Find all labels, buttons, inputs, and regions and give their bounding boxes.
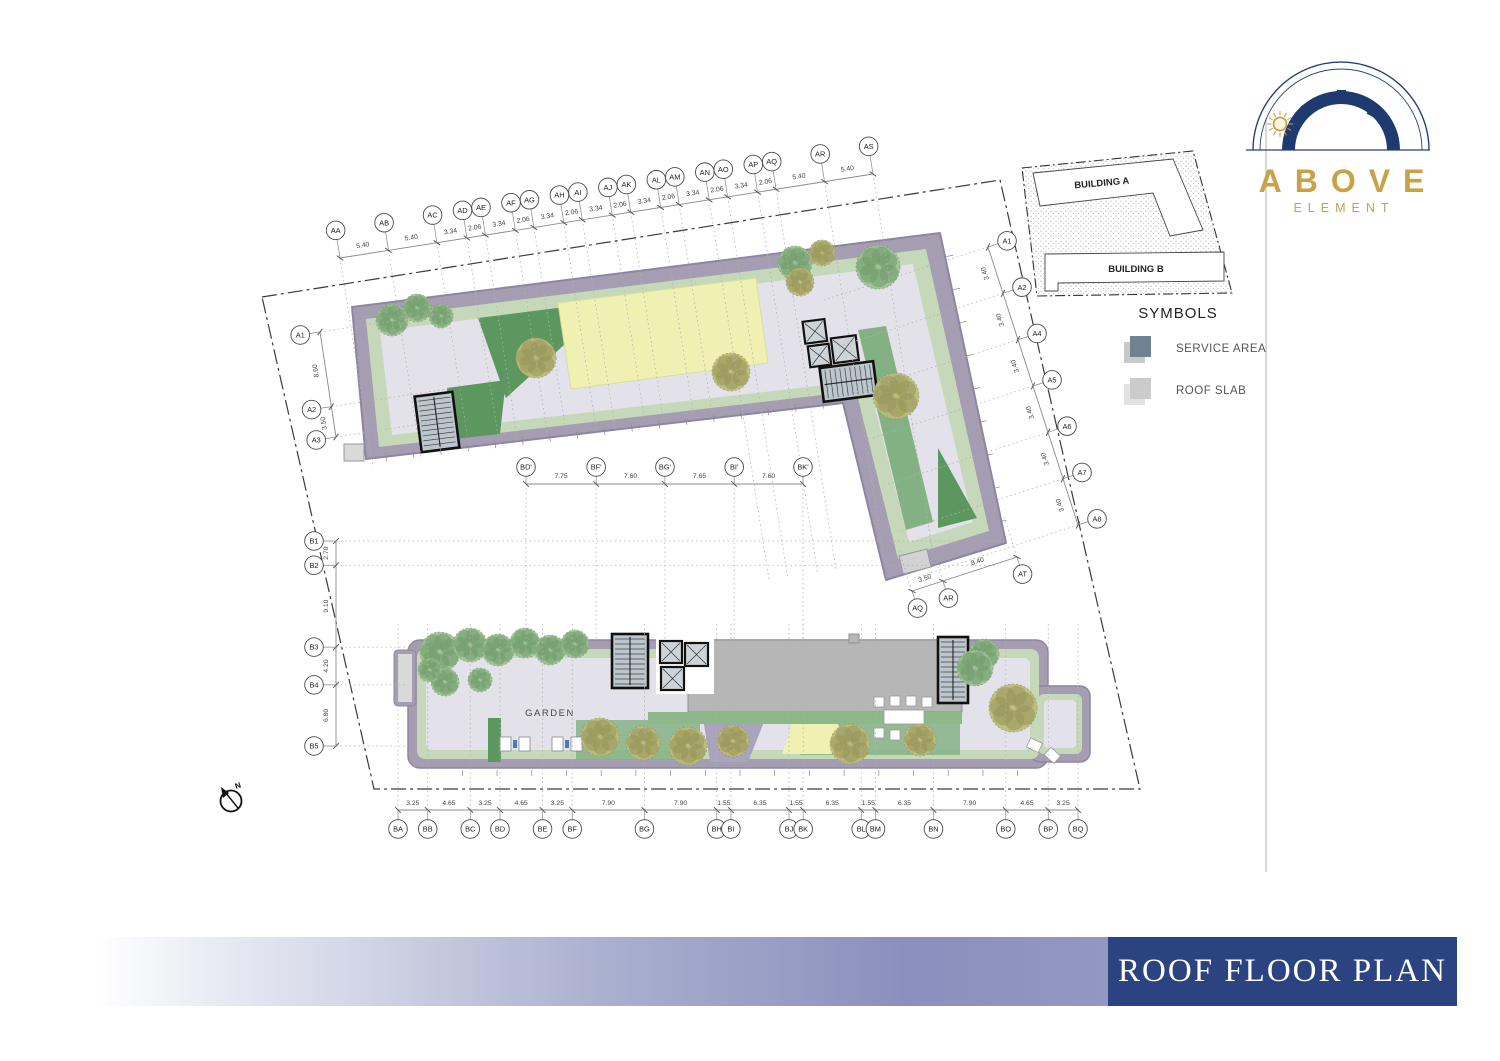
tree	[989, 684, 1037, 732]
grid-label: AS	[864, 142, 874, 151]
grid-label: A8	[1093, 514, 1102, 523]
grid-dim: 3.34	[492, 220, 506, 229]
grid-label: BG	[639, 825, 650, 834]
tree	[429, 304, 453, 328]
logo-subtitle: ELEMENT	[1293, 201, 1394, 215]
grid-label: AO	[718, 165, 729, 174]
service-slab	[688, 640, 962, 712]
grid-dim: 7.90	[963, 800, 976, 807]
grid-label: BI	[727, 825, 734, 834]
tree	[581, 718, 619, 756]
grid-label: AE	[476, 203, 486, 212]
grid-dim: 4.65	[515, 800, 528, 807]
grid-label: BF	[568, 825, 578, 834]
grid-label: AK	[621, 180, 631, 189]
grid-dim: 2.06	[516, 216, 530, 225]
logo-rock-4	[1390, 138, 1399, 150]
grid-label: AA	[331, 226, 341, 235]
tree	[516, 338, 556, 378]
tree	[717, 725, 749, 757]
grid-label: BN	[928, 825, 938, 834]
grid-label: A3	[312, 436, 321, 445]
service-area-label: SERVICE AREA	[1176, 343, 1266, 355]
grid-dim: 4.20	[323, 659, 330, 672]
tree	[418, 658, 442, 682]
grid-label: AN	[700, 168, 710, 177]
grid-dim: 9.10	[323, 599, 330, 612]
grid-label: BD	[495, 825, 505, 834]
grid-label: BF'	[591, 463, 602, 472]
grid-dim: 3.34	[589, 205, 603, 214]
grid-dim: 7.75	[554, 473, 567, 480]
grid-dim: 2.06	[662, 193, 676, 202]
garden-label: GARDEN	[525, 708, 575, 719]
grid-label: AD	[457, 206, 467, 215]
key-plan: BUILDING A BUILDING B	[1022, 151, 1232, 296]
key-plan-building-b-label: BUILDING B	[1108, 264, 1164, 275]
grid-dim: 7.65	[693, 473, 706, 480]
grid-label: B2	[309, 561, 318, 570]
grid-label: BB	[423, 825, 433, 834]
brand-logo: ABOVE ELEMENT	[1246, 62, 1437, 872]
roof-slab-swatch	[1130, 378, 1151, 399]
grid-label: AR	[815, 150, 825, 159]
grid-label: A2	[307, 405, 316, 414]
tree	[830, 724, 870, 764]
grid-label: BJ	[785, 825, 794, 834]
service-slab-notch	[849, 634, 859, 643]
grid-dim: 3.25	[478, 800, 491, 807]
stair-core-b-left	[612, 634, 648, 688]
grid-dim: 3.50	[320, 416, 329, 430]
grid-label: AJ	[604, 183, 613, 192]
grid-dim: 7.90	[602, 800, 615, 807]
tree	[403, 294, 431, 322]
roof-plan-drawing: GARDEN AAABACADAEAFAGAHAIAJAKALAMANAOAPA…	[0, 0, 1500, 1061]
grid-dim: 7.60	[624, 473, 637, 480]
grid-label: AF	[506, 198, 516, 207]
grid-label: A4	[1033, 329, 1042, 338]
tree	[482, 634, 514, 666]
sheet-canvas: GARDEN AAABACADAEAFAGAHAIAJAKALAMANAOAPA…	[0, 0, 1500, 1061]
tree	[669, 727, 707, 765]
grid-dim: 6.35	[753, 800, 766, 807]
building-b-right-paving	[1044, 700, 1076, 748]
grid-label: BA	[393, 825, 403, 834]
grid-dim: 3.25	[406, 800, 419, 807]
tree	[904, 724, 936, 756]
grid-dim: 3.40	[995, 312, 1006, 327]
grid-label: BI'	[730, 463, 739, 472]
grid-label: AH	[554, 191, 564, 200]
sheet-title: ROOF FLOOR PLAN	[1118, 953, 1447, 990]
tree	[873, 373, 919, 419]
grid-dim: 3.25	[1057, 800, 1070, 807]
grid-dim: 4.65	[1020, 800, 1033, 807]
grid-dim: 3.34	[734, 182, 748, 191]
grid-label: AG	[524, 195, 535, 204]
grid-label: BL	[857, 825, 866, 834]
grid-label: BM	[870, 825, 881, 834]
tree	[712, 353, 750, 391]
grid-dim: 7.60	[762, 473, 775, 480]
grid-dim: 2.06	[613, 201, 627, 210]
building-b-dark-green-stripe	[488, 718, 501, 762]
grid-label: BK'	[797, 463, 809, 472]
grid-label: BC	[465, 825, 476, 834]
grid-label: AP	[748, 160, 758, 169]
north-label: N	[234, 780, 242, 790]
grid-dim: 2.06	[710, 185, 724, 194]
footer-gradient-bar	[95, 937, 1108, 1006]
logo-wordmark: ABOVE	[1259, 163, 1438, 199]
grid-dim: 3.40	[1040, 451, 1051, 466]
sheet-title-bar: ROOF FLOOR PLAN	[1108, 937, 1457, 1006]
tree	[809, 240, 835, 266]
grid-dim: 7.90	[674, 800, 687, 807]
grid-dim: 5.40	[840, 165, 854, 174]
grid-dim: 3.34	[540, 212, 554, 221]
building-a-left-notch	[344, 444, 364, 461]
grid-label: AT	[1018, 570, 1027, 579]
grid-label: AQ	[766, 157, 777, 166]
grid-label: AB	[379, 218, 389, 227]
tree	[468, 668, 492, 692]
grid-label: AI	[574, 188, 581, 197]
symbols-legend: SYMBOLS SERVICE AREA ROOF SLAB	[1124, 305, 1266, 405]
logo-bridge-arch	[1282, 91, 1400, 150]
grid-label: B1	[309, 537, 318, 546]
grid-dim: 3.40	[1010, 358, 1021, 373]
grid-label: A5	[1048, 375, 1057, 384]
grid-label: A2	[1018, 283, 1027, 292]
grid-dim: 8.60	[312, 363, 321, 377]
grid-label: AR	[943, 594, 953, 603]
roof-slab-label: ROOF SLAB	[1176, 385, 1246, 397]
grid-dim: 3.25	[551, 800, 564, 807]
grid-label: A6	[1063, 422, 1072, 431]
grid-dim: 2.06	[565, 208, 579, 217]
grid-label: BG'	[659, 463, 672, 472]
grid-dim: 3.40	[1025, 405, 1036, 420]
tree	[856, 245, 900, 289]
grid-label: B5	[309, 742, 318, 751]
north-arrow: N	[221, 780, 243, 811]
grid-dim: 3.40	[980, 266, 991, 281]
grid-dim: 3.34	[443, 227, 457, 236]
grid-label: BH	[712, 825, 722, 834]
grid-label: BP	[1043, 825, 1053, 834]
grid-dim: 8.40	[970, 556, 985, 567]
logo-rock-2	[1337, 90, 1346, 97]
grid-label: A7	[1078, 468, 1087, 477]
grid-label: BO	[1000, 825, 1011, 834]
tree	[957, 650, 993, 686]
building-b-left-protrusion-inner	[398, 654, 412, 702]
logo-tower	[1286, 128, 1294, 150]
grid-dim: 3.34	[686, 189, 700, 198]
grid-label: B4	[309, 680, 318, 689]
grid-label: A1	[1003, 236, 1012, 245]
tree	[535, 635, 565, 665]
grid-dim: 2.06	[468, 224, 482, 233]
grid-label: AC	[427, 211, 438, 220]
service-area-swatch	[1130, 336, 1151, 357]
grid-dim: 1.55	[862, 800, 875, 807]
grid-label: BK	[798, 825, 808, 834]
tree	[786, 268, 814, 296]
grid-label: AL	[652, 175, 661, 184]
grid-dim: 3.34	[637, 197, 651, 206]
grid-label: B3	[309, 643, 318, 652]
grid-label: BE	[538, 825, 548, 834]
grid-dim: 2.70	[323, 546, 330, 559]
grid-label: BQ	[1073, 825, 1084, 834]
grid-dim: 6.35	[826, 800, 839, 807]
grid-dim: 6.35	[898, 800, 911, 807]
symbols-title: SYMBOLS	[1138, 305, 1218, 322]
grid-dim: 4.65	[442, 800, 455, 807]
grid-chain-mid: BD'BF'BG'BI'BK'7.757.607.657.60	[517, 458, 813, 640]
grid-label: AM	[669, 172, 680, 181]
grid-dim: 5.40	[404, 234, 418, 243]
grid-label: AQ	[912, 604, 923, 613]
tree	[561, 630, 589, 658]
grid-dim: 2.06	[758, 178, 772, 187]
grid-dim: 3.40	[1055, 497, 1066, 512]
tree	[626, 726, 660, 760]
grid-dim: 5.40	[356, 241, 370, 250]
stair-core-a	[415, 392, 460, 452]
logo-outer-arc	[1253, 62, 1429, 150]
grid-dim: 1.55	[717, 800, 730, 807]
grid-dim: 5.40	[792, 173, 806, 182]
grid-label: A1	[296, 331, 305, 340]
grid-label: BD'	[520, 463, 532, 472]
grid-dim: 3.50	[918, 573, 933, 584]
grid-dim: 1.55	[789, 800, 802, 807]
grid-dim: 6.80	[323, 709, 330, 722]
